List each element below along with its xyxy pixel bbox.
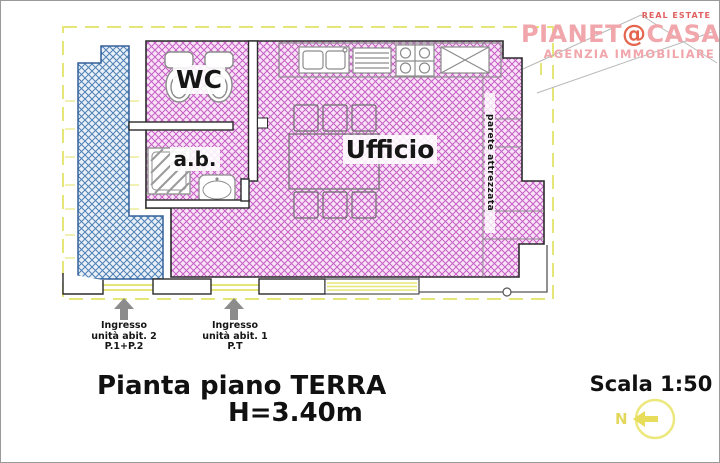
wall-wc-office bbox=[249, 41, 258, 181]
entrance-arrow-unit2 bbox=[114, 298, 134, 320]
entrance-label-unit1: Ingresso unità abit. 1 P.T bbox=[192, 321, 278, 353]
room-label-office: Ufficio bbox=[329, 135, 451, 164]
door-jamb bbox=[258, 118, 268, 128]
kitchen-drainboard bbox=[353, 48, 391, 73]
agency-logo: REAL ESTATE PIANET@CASA AGENZIA IMMOBILI… bbox=[521, 12, 717, 61]
entrance-arrow-unit1 bbox=[224, 298, 244, 320]
room-label-wc: WC bbox=[167, 65, 231, 94]
logo-real-estate: REAL ESTATE bbox=[521, 12, 711, 20]
column bbox=[503, 288, 511, 296]
kitchen-counter bbox=[279, 43, 501, 77]
plan-title: Pianta piano TERRA bbox=[97, 371, 386, 401]
window-band bbox=[325, 279, 419, 294]
room-label-ab: a.b. bbox=[163, 147, 227, 171]
floorplan-page: REAL ESTATE PIANET@CASA AGENZIA IMMOBILI… bbox=[0, 0, 720, 463]
logo-brand-post: CASA bbox=[646, 20, 720, 48]
equipped-wall-label: parete attrezzata bbox=[485, 93, 495, 233]
wall-block bbox=[153, 279, 211, 294]
logo-at-icon: @ bbox=[622, 20, 647, 48]
wall-block bbox=[259, 279, 325, 294]
entrance2-line1: Ingresso bbox=[81, 321, 167, 332]
entrance1-line1: Ingresso bbox=[192, 321, 278, 332]
bathroom-sink bbox=[199, 175, 235, 203]
entrance-label-unit2: Ingresso unità abit. 2 P.1+P.2 bbox=[81, 321, 167, 353]
entrance1-line3: P.T bbox=[192, 342, 278, 353]
plan-height: H=3.40m bbox=[228, 398, 363, 428]
entrance2-line3: P.1+P.2 bbox=[81, 342, 167, 353]
logo-agency-line: AGENZIA IMMOBILIARE bbox=[521, 49, 715, 61]
entrance-arrows bbox=[114, 298, 244, 320]
north-arrow bbox=[633, 411, 645, 427]
north-symbol bbox=[633, 400, 674, 438]
logo-brand-pre: PIANET bbox=[521, 20, 622, 48]
kitchen-cabinet bbox=[441, 47, 489, 73]
logo-brand: PIANET@CASA bbox=[521, 22, 717, 46]
north-letter: N bbox=[615, 410, 628, 428]
wall-wc-ab bbox=[129, 122, 233, 130]
wall-stub bbox=[241, 179, 249, 201]
plan-scale: Scala 1:50 bbox=[589, 372, 713, 396]
wall-ab-corridor bbox=[146, 200, 249, 208]
kitchen-stove bbox=[396, 45, 434, 76]
